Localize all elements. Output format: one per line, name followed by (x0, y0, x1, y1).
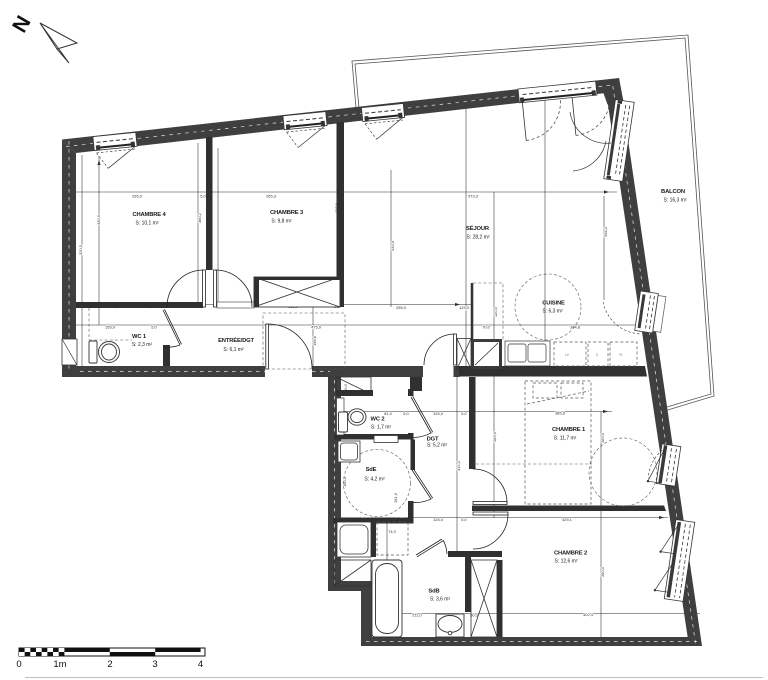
svg-text:S: 5,2 m²: S: 5,2 m² (427, 443, 448, 449)
svg-text:70,0: 70,0 (482, 325, 490, 330)
svg-text:260,0: 260,0 (600, 566, 605, 577)
svg-text:WC 1: WC 1 (132, 334, 147, 340)
svg-text:265,0: 265,0 (492, 431, 497, 442)
svg-text:125,0: 125,0 (433, 517, 444, 522)
svg-text:S: 10,1 m²: S: 10,1 m² (135, 221, 158, 227)
svg-text:360,2: 360,2 (197, 213, 202, 223)
svg-text:255,0: 255,0 (396, 305, 407, 310)
svg-text:3: 3 (152, 659, 157, 670)
svg-text:2: 2 (107, 659, 112, 670)
svg-text:385,8: 385,8 (555, 411, 565, 416)
svg-text:155,0: 155,0 (105, 325, 116, 330)
svg-text:180,0: 180,0 (342, 476, 347, 487)
svg-text:211,0: 211,0 (412, 613, 422, 618)
svg-text:BALCON: BALCON (661, 189, 685, 195)
svg-text:S: 4,2 m²: S: 4,2 m² (364, 477, 385, 483)
svg-text:S: 11,7 m²: S: 11,7 m² (554, 436, 577, 442)
svg-text:CHAMBRE 4: CHAMBRE 4 (132, 212, 166, 218)
svg-text:SdB: SdB (428, 589, 439, 595)
svg-text:CUISINE: CUISINE (542, 301, 565, 307)
svg-text:5,0: 5,0 (403, 411, 409, 416)
svg-text:5,0: 5,0 (461, 517, 467, 522)
svg-text:330,5: 330,5 (96, 215, 101, 225)
svg-text:SdE: SdE (366, 467, 377, 473)
svg-text:261,0: 261,0 (393, 492, 398, 503)
svg-text:S: 2,3 m²: S: 2,3 m² (132, 342, 153, 348)
svg-text:CHAMBRE 3: CHAMBRE 3 (270, 210, 304, 216)
svg-text:320,5: 320,5 (78, 245, 83, 255)
svg-text:5,0: 5,0 (200, 194, 206, 199)
svg-text:1m: 1m (53, 659, 66, 670)
svg-text:S: 3,6 m²: S: 3,6 m² (430, 597, 451, 603)
svg-text:S: 12,6 m²: S: 12,6 m² (554, 559, 577, 565)
svg-text:S: 6,3 m²: S: 6,3 m² (542, 309, 563, 315)
svg-text:CHAMBRE 2: CHAMBRE 2 (554, 551, 587, 557)
svg-text:4: 4 (198, 659, 203, 670)
svg-text:SÉJOUR: SÉJOUR (466, 224, 490, 232)
svg-text:295,0: 295,0 (132, 194, 143, 199)
svg-text:S: 28,2 m²: S: 28,2 m² (466, 235, 489, 241)
svg-text:265,0: 265,0 (600, 432, 605, 443)
svg-text:573,3: 573,3 (468, 194, 478, 199)
svg-text:402,4: 402,4 (583, 612, 594, 617)
svg-text:74,0: 74,0 (388, 529, 396, 534)
svg-text:120,0: 120,0 (493, 306, 498, 317)
svg-text:533,9: 533,9 (390, 241, 395, 251)
svg-text:429,1: 429,1 (562, 517, 572, 522)
svg-text:265,3: 265,3 (266, 194, 276, 199)
svg-text:125,0: 125,0 (459, 305, 470, 310)
svg-text:S: 16,3 m²: S: 16,3 m² (663, 198, 686, 204)
svg-text:81,0: 81,0 (384, 411, 392, 416)
svg-text:344,8: 344,8 (570, 325, 580, 330)
svg-text:196,6: 196,6 (312, 336, 317, 346)
svg-text:S: 6,1 m²: S: 6,1 m² (223, 347, 244, 353)
svg-text:0: 0 (16, 659, 21, 670)
svg-text:60,0: 60,0 (470, 613, 478, 618)
svg-text:598,3: 598,3 (603, 227, 608, 237)
svg-text:5,0: 5,0 (151, 325, 157, 330)
svg-text:CHAMBRE 1: CHAMBRE 1 (552, 427, 586, 433)
svg-text:314,0: 314,0 (456, 460, 461, 471)
svg-text:475,0: 475,0 (311, 325, 322, 330)
svg-text:S: 1,7 m²: S: 1,7 m² (371, 425, 392, 431)
svg-text:5,0: 5,0 (461, 411, 467, 416)
svg-text:ENTRÉE/DGT: ENTRÉE/DGT (218, 336, 254, 344)
svg-text:125,0: 125,0 (433, 411, 444, 416)
svg-text:S: 9,8 m²: S: 9,8 m² (271, 219, 292, 225)
svg-text:WC 2: WC 2 (371, 417, 385, 423)
